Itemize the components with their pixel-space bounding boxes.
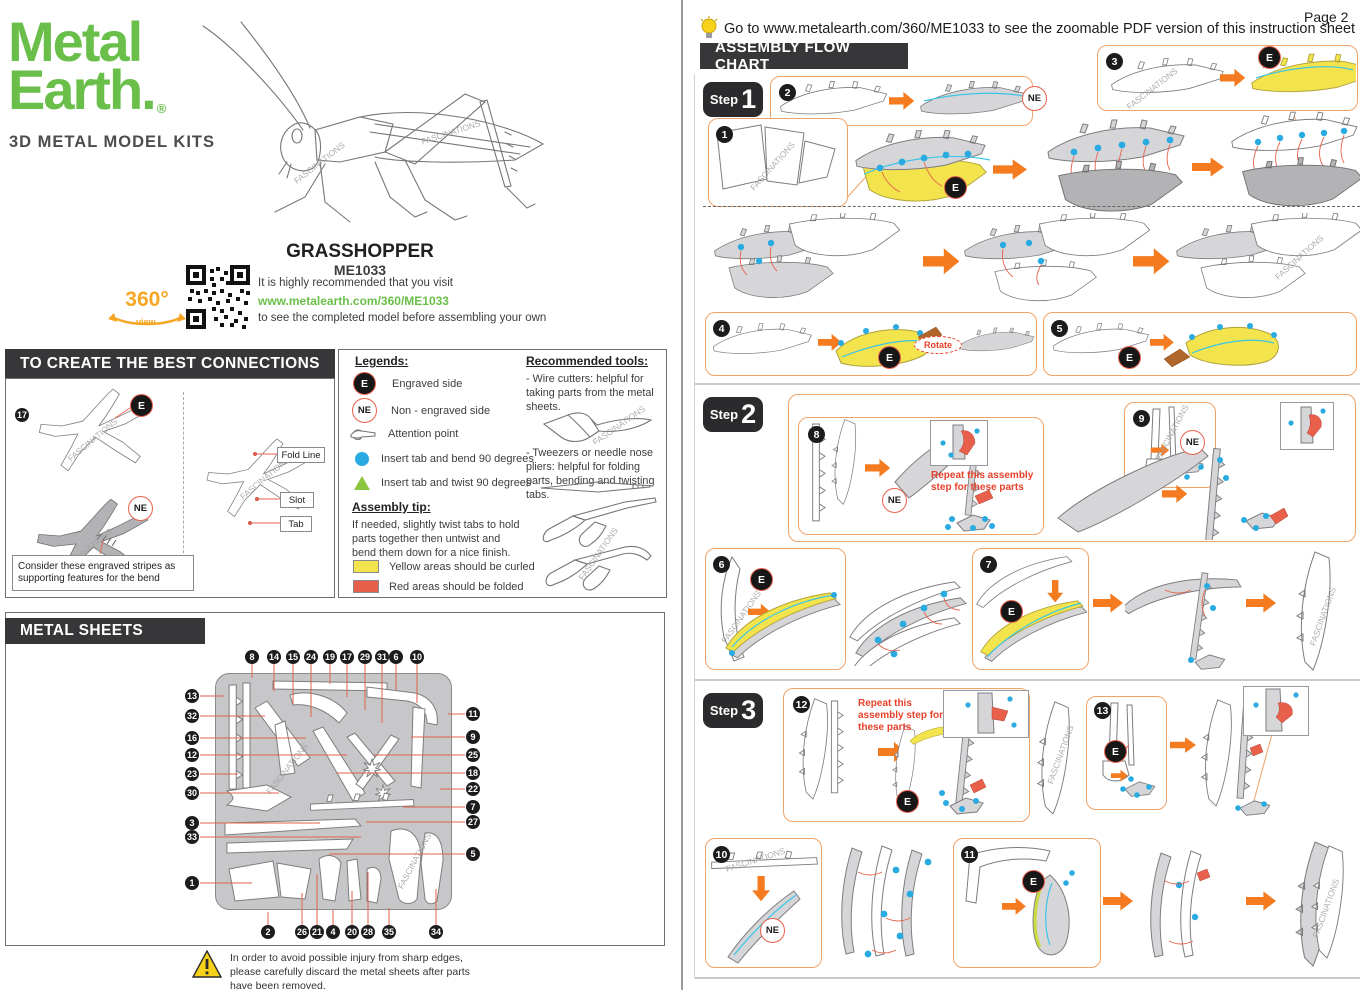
non-engraved-badge: NE <box>882 488 907 513</box>
legend-item: NE Non - engraved side <box>352 398 490 423</box>
step1-row2-assemblies: FASCINATIONS <box>705 213 1360 310</box>
legend-item: Attention point <box>350 426 458 442</box>
view-360-icon: 360° view <box>108 288 186 333</box>
instruction-sheet-page: Metal Earth. ® 3D METAL MODEL KITS FASCI… <box>0 0 1362 990</box>
step3-wing-result: FASCINATIONS <box>1282 838 1360 970</box>
qr-code <box>186 265 250 329</box>
flow-box-part3: FASCINATIONS <box>1097 45 1358 111</box>
yellow-swatch <box>353 560 379 573</box>
flow-part-number: 2 <box>779 84 796 101</box>
engraved-badge: E <box>130 394 153 417</box>
flow-part-number: 8 <box>808 426 825 443</box>
fold-detail-inset <box>930 420 988 466</box>
warning-text: In order to avoid possible injury from s… <box>230 951 490 990</box>
fold-line-label: Fold Line <box>277 447 325 463</box>
visit-line1: It is highly recommended that you visit <box>258 277 453 289</box>
watermark-text: FASCINATIONS <box>576 525 620 582</box>
engraved-stripes-note: Consider these engraved stripes as suppo… <box>12 555 194 591</box>
red-note: Red areas should be folded <box>389 581 524 593</box>
yellow-legend-row: Yellow areas should be curled <box>353 560 535 573</box>
view-360-sub: view <box>136 317 157 327</box>
flow-part-number: 1 <box>716 126 733 143</box>
flow-part-number: 9 <box>1133 410 1150 427</box>
step3-middle-assembly <box>824 842 951 964</box>
step-word: Step <box>710 407 738 422</box>
tweezers-icon <box>538 479 656 495</box>
legend-item: E Engraved side <box>353 372 462 395</box>
watermark-text: FASCINATIONS <box>591 403 648 444</box>
legend-label: Insert tab and bend 90 degrees <box>381 453 534 465</box>
red-legend-row: Red areas should be folded <box>353 580 524 593</box>
step3-wing-part: FASCINATIONS <box>1028 698 1086 814</box>
flow-part-number: 10 <box>713 846 730 863</box>
tools-title: Recommended tools: <box>526 354 648 368</box>
step2-central-assembly <box>1050 440 1290 540</box>
flow-part-number: 12 <box>793 696 810 713</box>
flow-part-number: 11 <box>961 846 978 863</box>
step1-dashed-divider <box>703 206 1360 207</box>
engraved-badge: E <box>750 568 773 591</box>
step-word: Step <box>710 92 738 107</box>
sheet-leader-lines <box>0 600 680 990</box>
product-title: GRASSHOPPER <box>150 241 570 263</box>
engraved-badge: E <box>1104 740 1127 763</box>
fold-detail-inset <box>1280 402 1334 450</box>
fold-detail-inset <box>1243 686 1309 736</box>
step-number: 3 <box>741 697 756 724</box>
non-engraved-badge-icon: NE <box>352 398 377 423</box>
engraved-badge: E <box>878 346 901 369</box>
legend-item: Insert tab and bend 90 degrees <box>353 450 534 468</box>
non-engraved-badge: NE <box>128 496 153 521</box>
view-360-swoosh: view <box>108 312 186 328</box>
step1-assembly <box>1228 108 1360 216</box>
visit-line2: to see the completed model before assemb… <box>258 312 546 324</box>
step-number: 2 <box>741 401 756 428</box>
engraved-badge: E <box>1000 600 1023 623</box>
red-swatch <box>353 580 379 593</box>
legend-label: Engraved side <box>392 378 462 390</box>
warning-triangle-icon <box>192 950 222 978</box>
legend-label: Non - engraved side <box>391 405 490 417</box>
repeat-note: Repeat this assembly step for these part… <box>931 470 1039 494</box>
watermark-text: FASCINATIONS <box>292 140 347 186</box>
yellow-note: Yellow areas should be curled <box>389 561 535 573</box>
engraved-badge-icon: E <box>353 372 376 395</box>
needle-nose-pliers-icon: FASCINATIONS <box>533 496 661 594</box>
step3-result-assembly <box>1135 845 1243 967</box>
step2-middle-assembly <box>848 552 970 666</box>
step-word: Step <box>710 703 738 718</box>
step1-assembly <box>1042 118 1190 218</box>
wire-cutters-icon: FASCINATIONS <box>540 398 655 444</box>
non-engraved-badge: NE <box>760 918 785 943</box>
engraved-badge: E <box>896 790 919 813</box>
visit-url-link[interactable]: www.metalearth.com/360/ME1033 <box>258 294 449 308</box>
legends-title: Legends: <box>355 354 408 368</box>
flow-part-number: 7 <box>980 556 997 573</box>
flow-part-number: 13 <box>1094 702 1111 719</box>
view-360-label: 360° <box>108 288 186 312</box>
connections-header: TO CREATE THE BEST CONNECTIONS <box>5 349 335 378</box>
engraved-badge: E <box>1022 870 1045 893</box>
flow-box-part4 <box>705 312 1037 376</box>
step-1-badge: Step 1 <box>703 82 763 117</box>
brand-logo: Metal Earth. ® <box>8 18 166 114</box>
legend-label: Attention point <box>388 428 458 440</box>
example-part-number: 17 <box>15 408 29 422</box>
rotate-label: Rotate <box>914 336 962 354</box>
assembly-tip-text: If needed, slightly twist tabs to hold p… <box>352 518 520 560</box>
slot-label: Slot <box>280 492 314 508</box>
step2-leg-assembly <box>1125 550 1243 672</box>
engraved-badge: E <box>1118 346 1141 369</box>
step-number: 1 <box>741 86 756 113</box>
flow-box-part5 <box>1043 312 1357 376</box>
registered-mark: ® <box>157 103 167 114</box>
assembly-tip-title: Assembly tip: <box>352 500 431 514</box>
grasshopper-illustration: FASCINATIONS FASCINATIONS <box>175 12 570 240</box>
legend-label: Insert tab and twist 90 degrees <box>381 477 531 489</box>
green-triangle-icon <box>353 475 371 491</box>
flow-part-number: 5 <box>1051 320 1068 337</box>
step-2-badge: Step 2 <box>703 397 763 432</box>
brand-logo-line2: Earth. <box>8 66 155 114</box>
blue-dot-icon <box>353 450 371 468</box>
step1-assembly <box>852 130 997 210</box>
step-3-badge: Step 3 <box>703 693 763 728</box>
engraved-badge: E <box>1258 46 1281 69</box>
tab-label: Tab <box>280 516 312 532</box>
attention-hand-icon <box>350 426 378 442</box>
non-engraved-badge: NE <box>1180 430 1205 455</box>
repeat-note: Repeat this assembly step for these part… <box>858 698 958 734</box>
non-engraved-badge: NE <box>1022 86 1047 111</box>
step2-wing-result: FASCINATIONS <box>1283 548 1360 672</box>
flow-part-number: 3 <box>1106 53 1123 70</box>
legend-item: Insert tab and twist 90 degrees <box>353 475 531 491</box>
engraved-badge: E <box>944 176 967 199</box>
flow-part-number: 6 <box>713 556 730 573</box>
flow-part-number: 4 <box>713 320 730 337</box>
